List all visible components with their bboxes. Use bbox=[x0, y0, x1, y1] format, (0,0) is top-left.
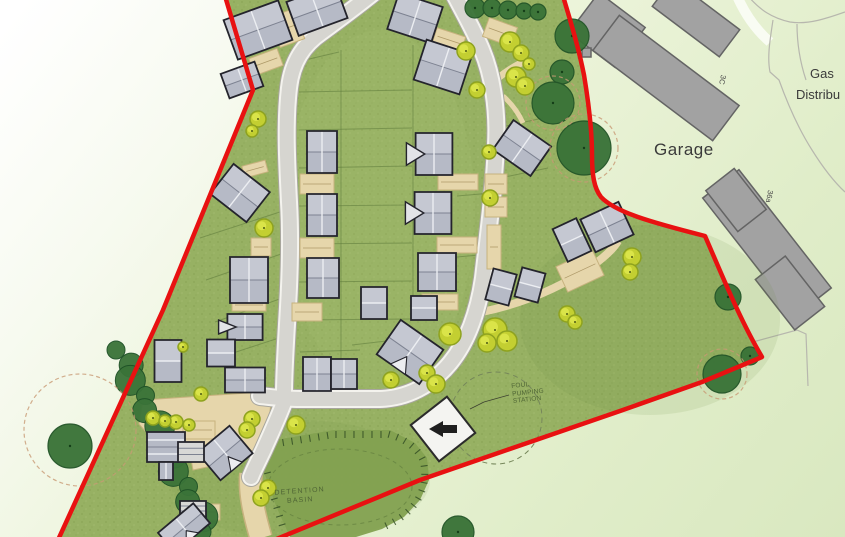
tree-highlight bbox=[252, 113, 260, 121]
house bbox=[331, 359, 357, 389]
house bbox=[411, 296, 437, 320]
tree-center-dot bbox=[175, 421, 177, 423]
tree-center-dot bbox=[260, 497, 262, 499]
tree-highlight bbox=[257, 221, 266, 230]
tree-center-dot bbox=[69, 445, 71, 447]
tree-center-dot bbox=[457, 531, 459, 533]
tree-highlight bbox=[289, 418, 298, 427]
tree-center-dot bbox=[749, 355, 751, 357]
tree-highlight bbox=[561, 308, 569, 316]
site-plan-page: Garage Gas Distribu 3C 36a FOUL PUMPING … bbox=[0, 0, 845, 537]
tree-highlight bbox=[624, 266, 632, 274]
tree-highlight bbox=[442, 326, 453, 337]
tree-center-dot bbox=[465, 50, 467, 52]
tree-center-dot bbox=[507, 9, 509, 11]
tree-center-dot bbox=[474, 7, 476, 9]
tree-center-dot bbox=[566, 313, 568, 315]
house bbox=[178, 442, 204, 462]
tree-center-dot bbox=[506, 340, 508, 342]
tree-center-dot bbox=[476, 89, 478, 91]
tree-center-dot bbox=[561, 71, 563, 73]
existing-tree bbox=[442, 516, 474, 537]
house bbox=[361, 287, 387, 319]
tree-highlight bbox=[385, 374, 393, 382]
tree-center-dot bbox=[164, 420, 166, 422]
tree-highlight bbox=[241, 424, 249, 432]
tree-center-dot bbox=[246, 429, 248, 431]
tree-center-dot bbox=[251, 418, 253, 420]
existing-road-edge bbox=[797, 24, 806, 80]
existing-road-edge bbox=[748, 0, 845, 23]
tree-center-dot bbox=[426, 372, 428, 374]
tree-highlight bbox=[625, 250, 634, 259]
tree-highlight bbox=[421, 367, 429, 375]
tree-center-dot bbox=[629, 271, 631, 273]
tree-highlight bbox=[484, 192, 492, 200]
gas-label-line1: Gas bbox=[810, 66, 834, 81]
tree-highlight bbox=[255, 492, 263, 500]
tree-center-dot bbox=[523, 10, 525, 12]
tree-center-dot bbox=[486, 342, 488, 344]
tree-center-dot bbox=[295, 424, 297, 426]
existing-road-surface bbox=[737, 0, 770, 42]
tree-center-dot bbox=[537, 11, 539, 13]
tree-highlight bbox=[480, 336, 489, 345]
tree-highlight bbox=[459, 44, 468, 53]
house bbox=[307, 194, 337, 236]
tree-highlight bbox=[509, 70, 519, 80]
tree-center-dot bbox=[509, 41, 511, 43]
tree-center-dot bbox=[257, 118, 259, 120]
tree-center-dot bbox=[491, 7, 493, 9]
tree-highlight bbox=[429, 377, 438, 386]
garage-label: Garage bbox=[654, 140, 714, 160]
tree-center-dot bbox=[494, 329, 496, 331]
tree-center-dot bbox=[435, 383, 437, 385]
tree-highlight bbox=[515, 47, 523, 55]
tree-center-dot bbox=[515, 76, 517, 78]
tree-highlight bbox=[503, 35, 513, 45]
tree-center-dot bbox=[263, 227, 265, 229]
tree-center-dot bbox=[552, 102, 554, 104]
tree-center-dot bbox=[520, 52, 522, 54]
tree-highlight bbox=[246, 413, 254, 421]
tree-center-dot bbox=[200, 393, 202, 395]
tree-center-dot bbox=[188, 424, 190, 426]
house bbox=[418, 253, 456, 291]
tree-center-dot bbox=[390, 379, 392, 381]
tree-center-dot bbox=[488, 151, 490, 153]
gas-label-line2: Distribu bbox=[796, 87, 840, 102]
tree-center-dot bbox=[489, 197, 491, 199]
tree-center-dot bbox=[524, 85, 526, 87]
tree-center-dot bbox=[583, 147, 585, 149]
house bbox=[303, 357, 331, 391]
tree-highlight bbox=[500, 334, 510, 344]
existing-road-edge bbox=[769, 20, 845, 192]
house bbox=[307, 131, 337, 173]
house bbox=[225, 368, 265, 393]
hedgerow-tree bbox=[107, 341, 125, 359]
tree-center-dot bbox=[574, 321, 576, 323]
house bbox=[230, 257, 268, 303]
tree-highlight bbox=[471, 84, 479, 92]
house bbox=[207, 340, 235, 367]
tree-center-dot bbox=[631, 256, 633, 258]
house bbox=[307, 258, 339, 298]
outbuilding bbox=[652, 0, 740, 57]
tree-highlight bbox=[486, 321, 498, 333]
tree-center-dot bbox=[251, 130, 253, 132]
tree-center-dot bbox=[528, 63, 530, 65]
tree-center-dot bbox=[449, 333, 451, 335]
pumping-station-label: FOUL PUMPING STATION bbox=[511, 380, 545, 406]
tree-highlight bbox=[518, 79, 527, 88]
tree-center-dot bbox=[182, 346, 184, 348]
tree-center-dot bbox=[152, 417, 154, 419]
